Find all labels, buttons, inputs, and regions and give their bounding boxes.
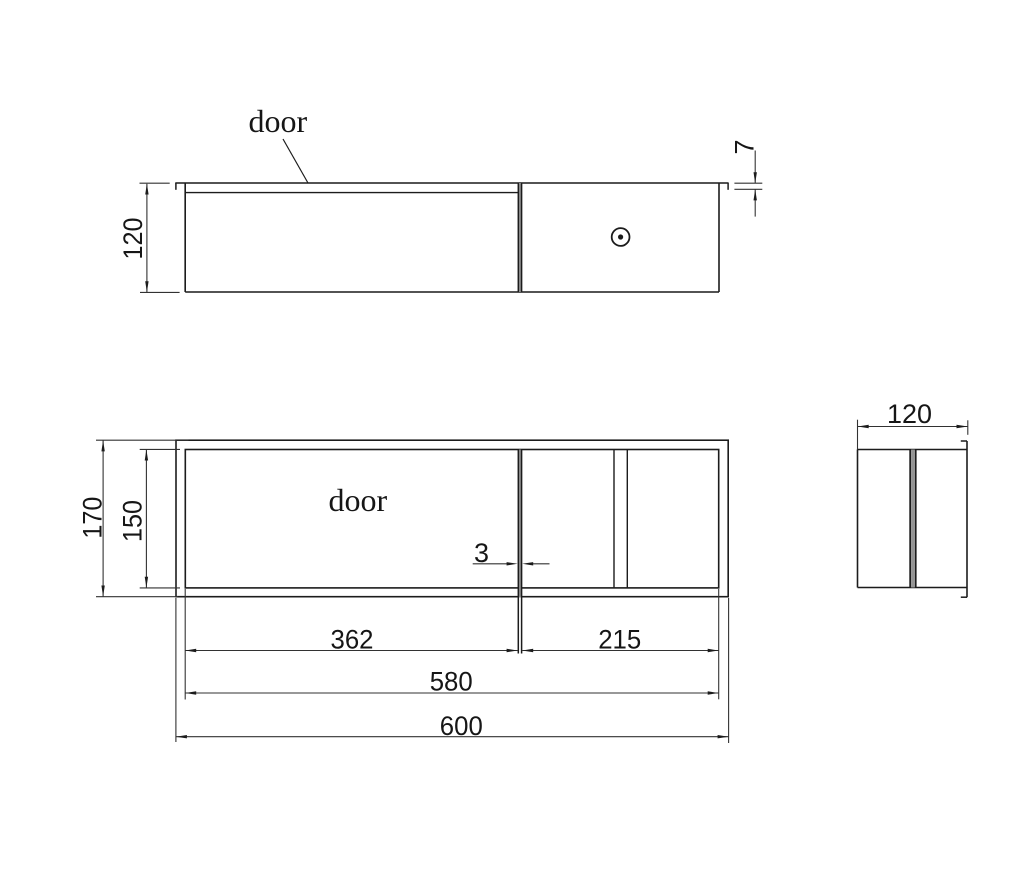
- svg-text:580: 580: [430, 667, 473, 697]
- svg-text:7: 7: [730, 139, 760, 154]
- svg-text:362: 362: [331, 625, 374, 655]
- svg-text:door: door: [329, 482, 388, 518]
- svg-text:120: 120: [118, 218, 148, 260]
- svg-text:150: 150: [117, 500, 147, 542]
- svg-text:120: 120: [887, 399, 932, 429]
- svg-text:600: 600: [440, 711, 483, 741]
- svg-text:215: 215: [598, 625, 641, 655]
- svg-text:170: 170: [78, 497, 108, 539]
- svg-text:door: door: [249, 103, 308, 139]
